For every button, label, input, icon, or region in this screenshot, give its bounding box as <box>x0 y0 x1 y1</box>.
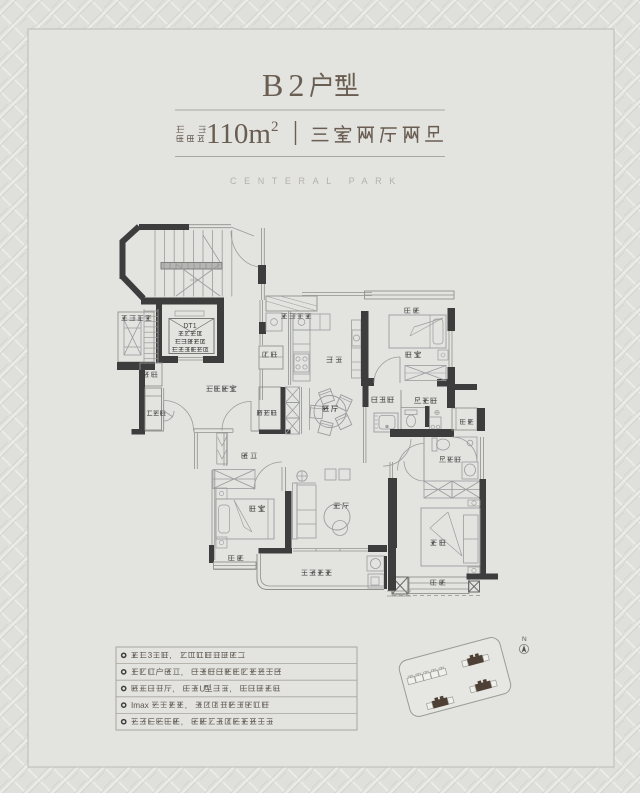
svg-text:,: , <box>181 718 183 727</box>
svg-text:DT1: DT1 <box>183 323 196 330</box>
svg-text:,: , <box>169 651 171 660</box>
svg-text:,: , <box>185 701 187 710</box>
svg-text:N: N <box>522 636 527 643</box>
svg-text:110m: 110m <box>206 118 271 150</box>
svg-text:U: U <box>199 684 205 693</box>
svg-text:2: 2 <box>271 119 279 135</box>
svg-text:CENTERAL PARK: CENTERAL PARK <box>230 176 403 186</box>
svg-text:,: , <box>181 668 183 677</box>
svg-text:3: 3 <box>148 651 153 660</box>
svg-text:,: , <box>229 684 231 693</box>
svg-text:Imax: Imax <box>131 701 149 710</box>
svg-text:B2: B2 <box>262 67 309 103</box>
svg-text:,: , <box>173 684 175 693</box>
